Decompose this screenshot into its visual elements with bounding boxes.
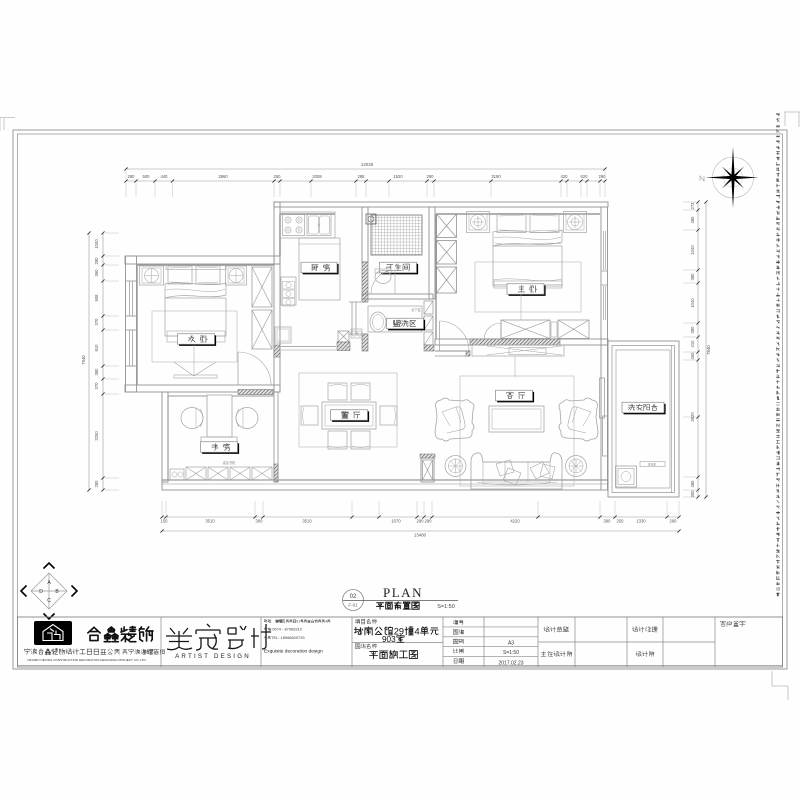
svg-text:300: 300 [256, 519, 264, 524]
svg-text:3920: 3920 [690, 412, 695, 422]
svg-text:桌及书柜: 桌及书柜 [223, 460, 237, 465]
svg-text:3510: 3510 [302, 519, 312, 524]
svg-text:480: 480 [690, 216, 695, 224]
svg-text:390: 390 [604, 519, 612, 524]
svg-text:288: 288 [358, 174, 366, 179]
svg-text:7940: 7940 [81, 355, 86, 365]
svg-text:150: 150 [161, 519, 169, 524]
svg-text:280: 280 [94, 480, 99, 488]
svg-text:380: 380 [690, 326, 695, 334]
svg-text:3510: 3510 [205, 519, 215, 524]
svg-text:2250: 2250 [94, 431, 99, 441]
svg-text:A3: A3 [508, 640, 514, 646]
svg-text:NINGBO HEXING CONSTRUCTION DEC: NINGBO HEXING CONSTRUCTION DECORATION DE… [27, 658, 146, 662]
svg-text:Exquisite decoration design: Exquisite decoration design [264, 649, 323, 655]
svg-text:2008: 2008 [312, 174, 322, 179]
svg-text:02: 02 [350, 594, 357, 600]
svg-text:908: 908 [94, 294, 99, 302]
svg-text:450: 450 [690, 352, 695, 360]
svg-text:290: 290 [417, 519, 425, 524]
svg-text:370: 370 [94, 318, 99, 326]
svg-text:TEL: 18968600793: TEL: 18968600793 [271, 635, 305, 640]
svg-text::: : [271, 619, 272, 623]
svg-text:370: 370 [94, 382, 99, 390]
svg-text:1040: 1040 [690, 298, 695, 308]
svg-text:300: 300 [690, 490, 695, 498]
svg-text:903: 903 [382, 635, 396, 644]
svg-text:台下盆: 台下盆 [411, 307, 421, 312]
svg-text:1070: 1070 [391, 519, 401, 524]
svg-text:1040: 1040 [690, 245, 695, 255]
svg-text:620: 620 [581, 174, 589, 179]
svg-text:273: 273 [690, 202, 695, 210]
svg-text:290: 290 [670, 519, 678, 524]
svg-text:61: 61 [296, 619, 300, 623]
svg-text:D: D [39, 589, 43, 595]
svg-text:360: 360 [94, 269, 99, 277]
svg-text:2860: 2860 [218, 174, 228, 179]
svg-text:ARTIST DESIGN: ARTIST DESIGN [175, 653, 251, 660]
svg-text:4: 4 [414, 627, 419, 637]
svg-text:380: 380 [690, 273, 695, 281]
svg-text:7840: 7840 [706, 345, 711, 355]
svg-text:洗衣机: 洗衣机 [648, 462, 657, 466]
svg-text:290: 290 [427, 174, 435, 179]
svg-text::0574 - 87066310: :0574 - 87066310 [271, 626, 303, 631]
svg-text:480: 480 [690, 480, 695, 488]
svg-text:F-01: F-01 [348, 603, 358, 608]
svg-text:1520: 1520 [393, 174, 403, 179]
svg-text:410: 410 [690, 340, 695, 348]
svg-text:440: 440 [161, 174, 169, 179]
svg-text:S=1:50: S=1:50 [503, 650, 519, 656]
svg-text:290: 290 [425, 519, 433, 524]
svg-text:250: 250 [274, 174, 282, 179]
svg-text:S=1:50: S=1:50 [437, 604, 455, 610]
svg-text:4: 4 [325, 619, 327, 623]
svg-text:12028: 12028 [361, 162, 374, 167]
svg-text:3190: 3190 [491, 174, 501, 179]
svg-text:PLAN: PLAN [383, 585, 423, 600]
svg-text:280: 280 [128, 174, 136, 179]
svg-text:1000: 1000 [94, 239, 99, 249]
svg-text:250: 250 [617, 519, 625, 524]
svg-text:380: 380 [94, 368, 99, 376]
svg-text:13480: 13480 [414, 533, 427, 538]
svg-text:910: 910 [94, 344, 99, 352]
svg-text:1330: 1330 [636, 519, 646, 524]
svg-text:C: C [47, 598, 51, 604]
svg-text:2017.02.23: 2017.02.23 [498, 660, 523, 666]
svg-text:420: 420 [561, 174, 569, 179]
svg-text:280: 280 [94, 257, 99, 265]
svg-text:4220: 4220 [510, 519, 520, 524]
svg-text:500: 500 [143, 174, 151, 179]
